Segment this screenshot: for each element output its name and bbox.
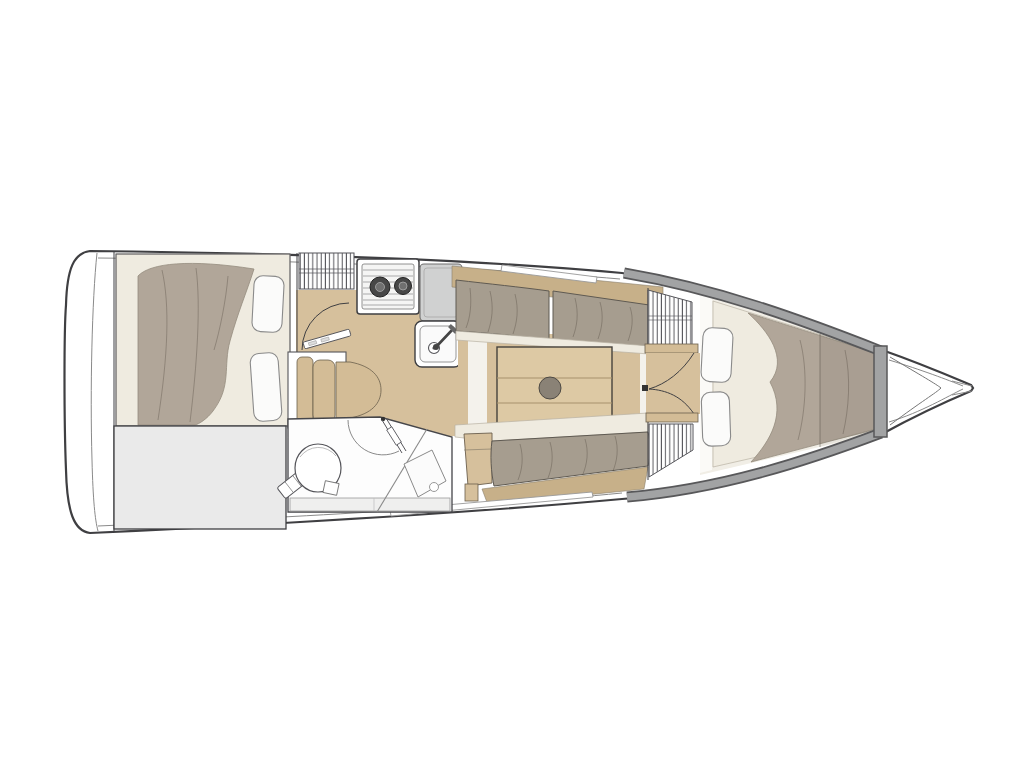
galley-sink [415,321,461,367]
stbd-end-cabinet [464,433,492,486]
aft-storage-locker [114,426,286,529]
shower-drain [430,483,439,492]
door-hinge [381,417,385,421]
head-compartment [277,417,452,512]
companionway-step-1 [297,357,313,423]
head-counter [290,498,450,511]
aft-pillow-2 [250,352,283,422]
yacht-floorplan [0,0,1024,768]
door-latch [642,385,648,391]
aft-pillow-1 [252,275,285,332]
stbd-cabinet-lower [465,484,478,501]
doorway-floor [646,353,702,414]
bow-bulkhead-bar [874,346,887,437]
salon-sole-strip-left [468,334,487,430]
stove-burner-left-center [376,283,385,292]
stove-burner-right-center [399,282,407,290]
stove [357,259,419,314]
floorplan-canvas [0,0,1024,768]
aft-cabin [116,254,290,426]
table-leg-post [539,377,561,399]
toilet-flush-box [323,481,339,496]
companionway-step-2 [313,360,335,422]
forward-pillow-1 [701,327,734,382]
doorway-sill-bottom [646,413,698,422]
doorway-sill-top [645,344,698,353]
storage-hatch [114,426,286,529]
galley-locker-hatched [299,253,354,289]
forward-pillow-2 [701,392,731,447]
sink-faucet-base [433,344,439,350]
